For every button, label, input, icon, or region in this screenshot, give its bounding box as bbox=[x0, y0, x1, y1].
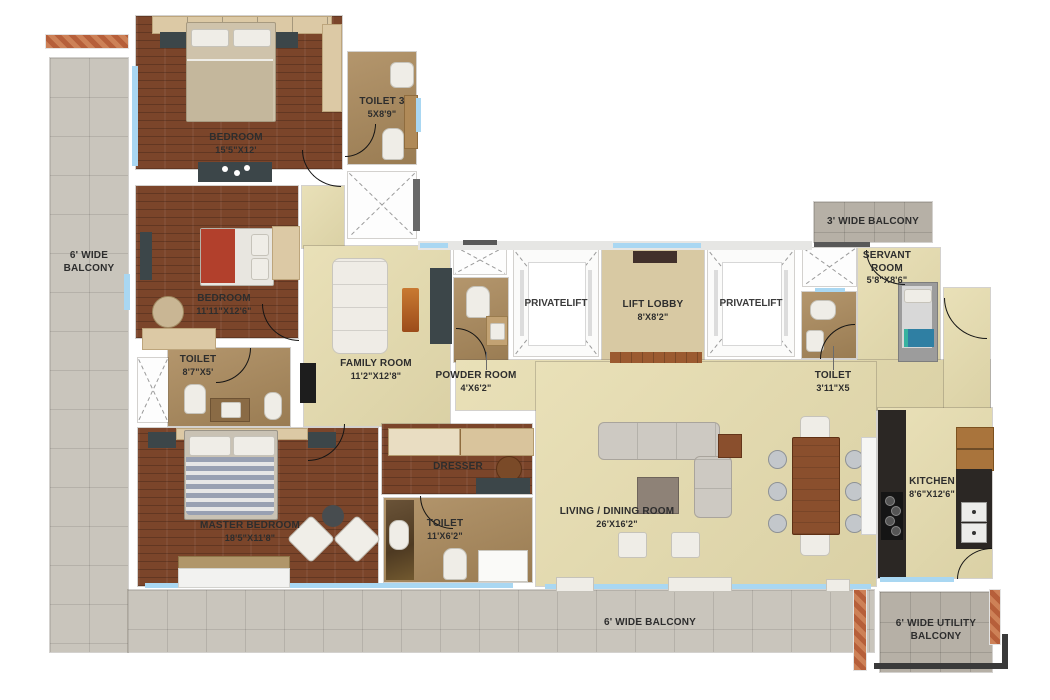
lift-right: PRIVATELIFT bbox=[708, 250, 794, 356]
bed-blanket bbox=[201, 229, 235, 283]
room-label-balcony-bottom: 6' WIDE BALCONY bbox=[570, 617, 730, 630]
toilet-fixture bbox=[382, 128, 404, 160]
dining-chair bbox=[768, 450, 787, 469]
tv-unit bbox=[198, 162, 272, 182]
toilet-fixture bbox=[443, 548, 467, 580]
shaft-x-mark bbox=[348, 172, 416, 238]
side-table-round bbox=[322, 505, 344, 527]
burner bbox=[891, 526, 901, 536]
bed-double bbox=[186, 22, 276, 122]
window-strip bbox=[124, 274, 130, 310]
room-label-living: LIVING / DINING ROOM26'X16'2" bbox=[557, 506, 677, 530]
bed-double bbox=[200, 228, 274, 286]
room-label-bedroom-1: BEDROOM15'5"X12' bbox=[186, 132, 286, 156]
balcony-bottom bbox=[128, 590, 874, 652]
toilet-fixture bbox=[184, 384, 206, 414]
wall-dark-strip bbox=[413, 179, 420, 231]
room-label-dresser: DRESSER bbox=[418, 461, 498, 474]
room-label-master: MASTER BEDROOM18'5"X11'8" bbox=[190, 520, 310, 544]
nightstand bbox=[148, 432, 176, 448]
toilet-fixture bbox=[810, 300, 836, 320]
bed-pillow bbox=[189, 436, 231, 456]
wall-dark-strip bbox=[814, 242, 870, 247]
wood-threshold bbox=[610, 352, 702, 363]
room-label-toilet-2: TOILET8'7"X5' bbox=[160, 354, 236, 378]
kitchen-sink bbox=[961, 502, 987, 522]
planter-ledge bbox=[854, 590, 866, 670]
drain-dot bbox=[972, 531, 976, 535]
dining-chair bbox=[768, 514, 787, 533]
bed-headboard bbox=[272, 226, 300, 280]
room-label-lift-right: PRIVATELIFT bbox=[708, 250, 794, 356]
bed-pillow bbox=[191, 29, 229, 47]
bed-single bbox=[898, 282, 938, 362]
shaft-x-mark bbox=[454, 246, 506, 274]
bed-pillow bbox=[233, 29, 271, 47]
bench-base bbox=[178, 568, 290, 588]
room-label-balcony-top: 3' WIDE BALCONY bbox=[814, 216, 932, 229]
vanity bbox=[210, 398, 250, 422]
utility-railing bbox=[1002, 634, 1008, 669]
console bbox=[300, 363, 316, 403]
shaft-x-mark bbox=[803, 248, 856, 286]
bed-pillow bbox=[251, 258, 269, 280]
duct-shaft bbox=[803, 248, 856, 286]
window-strip bbox=[132, 66, 138, 166]
balcony-left bbox=[50, 58, 128, 652]
wall-pillar bbox=[826, 579, 850, 592]
vanity bbox=[486, 316, 508, 346]
burner bbox=[885, 516, 895, 526]
sofa-l-horizontal bbox=[598, 422, 720, 460]
bed-pillow bbox=[251, 234, 269, 256]
utility-railing bbox=[874, 663, 1008, 669]
room-label-utility: 6' WIDE UTILITYBALCONY bbox=[880, 618, 992, 643]
wall-pillar bbox=[556, 577, 594, 592]
room-label-toilet-3: TOILET 35X8'9" bbox=[348, 96, 416, 120]
lift-left: PRIVATELIFT bbox=[514, 250, 598, 356]
bed-blanket-striped bbox=[186, 457, 274, 515]
room-label-bedroom-2: BEDROOM11'11"X12'6" bbox=[169, 293, 279, 317]
kitchen-island bbox=[861, 437, 877, 535]
tv-panel bbox=[140, 232, 152, 280]
passage-bedroom-1 bbox=[302, 186, 344, 248]
dresser-counter bbox=[476, 478, 530, 494]
ottoman bbox=[671, 532, 700, 558]
room-label-powder: POWDER ROOM4'X6'2" bbox=[431, 370, 521, 394]
decor-dot bbox=[222, 166, 228, 172]
tv-cabinet bbox=[430, 268, 452, 344]
bed-double bbox=[184, 430, 278, 520]
decor-dot bbox=[234, 170, 240, 176]
low-cabinet bbox=[142, 328, 216, 350]
sofa-l-vertical bbox=[694, 456, 732, 518]
room-label-toilet-master: TOILET11'X6'2" bbox=[405, 518, 485, 542]
door-mat bbox=[633, 251, 677, 263]
dining-chair bbox=[768, 482, 787, 501]
wall-pillar bbox=[668, 577, 732, 592]
room-label-servant: SERVANTROOM5'8"X8'6" bbox=[854, 250, 920, 286]
toilet-fixture bbox=[466, 286, 490, 318]
window-strip bbox=[420, 243, 448, 248]
dining-chair-end bbox=[800, 532, 830, 556]
door-swing-arc bbox=[302, 150, 341, 187]
duct-shaft bbox=[454, 246, 506, 274]
ottoman bbox=[618, 532, 647, 558]
floor-plan: PRIVATELIFT PRIVATELIFT bbox=[0, 0, 1050, 700]
room-label-lift-left: PRIVATELIFT bbox=[514, 250, 598, 356]
window-strip bbox=[613, 243, 701, 248]
room-label-family: FAMILY ROOM11'2"X12'8" bbox=[321, 358, 431, 382]
room-label-kitchen: KITCHEN8'6"X12'6" bbox=[894, 476, 970, 500]
dining-table bbox=[792, 437, 840, 535]
sink bbox=[221, 402, 241, 418]
drain-dot bbox=[972, 510, 976, 514]
sofa bbox=[332, 258, 388, 354]
kitchen-cabinet-wood bbox=[956, 427, 994, 471]
bed-pillow bbox=[233, 436, 275, 456]
window-strip bbox=[880, 577, 954, 582]
label-leader-line bbox=[833, 346, 834, 370]
room-label-toilet-servant: TOILET3'11"X5 bbox=[803, 370, 863, 394]
window-strip bbox=[815, 288, 845, 292]
pedestal-sink bbox=[264, 392, 282, 420]
bed-pillow bbox=[904, 289, 932, 303]
bed-blanket bbox=[187, 59, 273, 121]
planter-ledge bbox=[46, 35, 128, 48]
label-leader-line bbox=[486, 352, 487, 370]
wardrobe-tall bbox=[322, 24, 342, 112]
sink bbox=[490, 323, 505, 340]
bed-pillow-blue bbox=[904, 329, 934, 347]
rug bbox=[402, 288, 419, 332]
wall-dark-strip bbox=[463, 240, 497, 245]
duct-shaft bbox=[348, 172, 416, 238]
decor-dot bbox=[244, 165, 250, 171]
side-table-wood bbox=[718, 434, 742, 458]
kitchen-sink bbox=[961, 523, 987, 543]
shower-area bbox=[478, 550, 528, 582]
room-label-lift-lobby: LIFT LOBBY8'X8'2" bbox=[602, 299, 704, 323]
window-strip bbox=[416, 98, 421, 132]
room-label-balcony-left: 6' WIDEBALCONY bbox=[52, 250, 126, 275]
sink bbox=[390, 62, 414, 88]
burner bbox=[891, 506, 901, 516]
dresser-cabinet bbox=[388, 428, 534, 456]
